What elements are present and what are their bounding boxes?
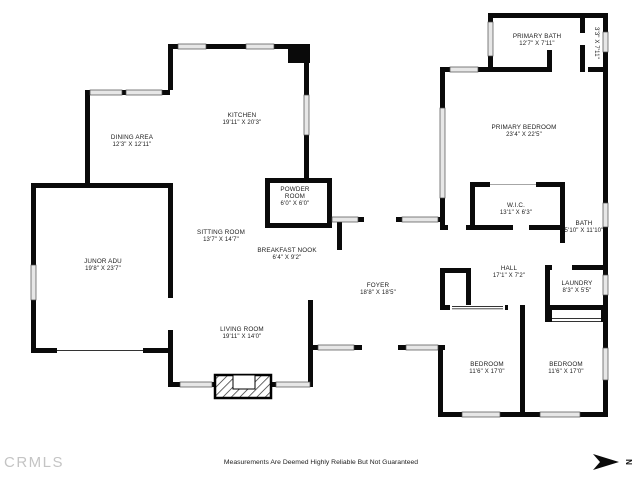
room-dims-bedroom-right: 11'6" X 17'0" (548, 369, 583, 375)
window (462, 412, 500, 417)
floor-plan-page: DINING AREA 12'3" X 12'11" KITCHEN 19'11… (0, 0, 640, 480)
room-dims-small-closet: 3'3" X 7'11" (593, 27, 599, 59)
room-dims-sitting: 13'7" X 14'7" (203, 237, 239, 243)
wall-segment (443, 268, 471, 273)
room-label-bedroom-right: BEDROOM (549, 361, 583, 368)
window (180, 382, 212, 387)
wall-segment (168, 49, 173, 90)
window (318, 345, 354, 350)
room-label-primary-bath: PRIMARY BATH (513, 33, 562, 40)
wall-segment (470, 187, 475, 230)
room-label-hall: HALL (501, 265, 518, 272)
door-opening (513, 225, 529, 230)
floor-plan-svg: DINING AREA 12'3" X 12'11" KITCHEN 19'11… (0, 0, 640, 480)
wall-segment (308, 300, 313, 387)
wall-segment (580, 18, 585, 33)
window (603, 32, 608, 52)
wall-segment (588, 67, 608, 72)
north-arrow-icon: N (593, 454, 633, 470)
door-opening (448, 225, 466, 230)
room-label-sitting: SITTING ROOM (197, 229, 245, 236)
closet-door-opening (450, 305, 505, 310)
room-label-wic: W.I.C. (507, 202, 525, 209)
wall-segment (466, 273, 471, 305)
wall-segment (440, 268, 445, 310)
room-label-dining: DINING AREA (111, 134, 154, 141)
wall-segment (520, 305, 525, 417)
room-dims-wic: 13'1" X 6'3" (500, 210, 532, 216)
window (450, 67, 478, 72)
room-label-powder-2: ROOM (285, 193, 305, 200)
north-label: N (624, 459, 633, 465)
room-label-foyer: FOYER (367, 282, 390, 289)
wall-segment (488, 67, 552, 72)
fireplace (215, 375, 271, 398)
room-dims-bedroom-left: 11'6" X 17'0" (469, 369, 504, 375)
window (603, 275, 608, 295)
wall-segment (545, 305, 608, 310)
room-dims-primary-bedroom: 23'4" X 22'5" (506, 132, 542, 138)
wall-segment (337, 222, 342, 250)
window (332, 217, 358, 222)
room-dims-living: 19'11" X 14'0" (223, 334, 262, 340)
door-opening (508, 305, 520, 310)
wall-segment (85, 95, 90, 183)
window (126, 90, 162, 95)
window (90, 90, 122, 95)
window (440, 108, 445, 198)
patio-door-opening (364, 217, 396, 222)
window (603, 203, 608, 227)
window (276, 382, 310, 387)
wall-segment (545, 270, 550, 310)
door-opening (552, 265, 572, 270)
crmls-logo: CRMLS (4, 454, 64, 471)
window (31, 265, 36, 300)
room-dims-powder: 6'0" X 6'0" (281, 201, 310, 207)
room-dims-dining: 12'3" X 12'11" (113, 142, 152, 148)
wall-segment (488, 13, 608, 18)
room-dims-adu: 19'8" X 23'7" (85, 266, 121, 272)
room-label-nook: BREAKFAST NOOK (257, 247, 317, 254)
room-dims-nook: 6'4" X 9'2" (273, 255, 302, 261)
window (304, 95, 309, 135)
window (603, 348, 608, 380)
room-labels: DINING AREA 12'3" X 12'11" KITCHEN 19'11… (84, 27, 603, 375)
front-door-opening (362, 345, 398, 350)
closet-post (545, 310, 552, 322)
wall-segment (580, 45, 585, 72)
door-openings (57, 182, 572, 353)
window (178, 44, 206, 49)
wall-segment (265, 223, 332, 228)
firebox (233, 375, 255, 389)
disclaimer-text: Measurements Are Deemed Highly Reliable … (224, 459, 418, 466)
north-arrow-shape (593, 454, 619, 470)
wall-segment (168, 188, 173, 387)
wall-segment (438, 345, 443, 417)
room-dims-foyer: 18'8" X 18'5" (360, 290, 396, 296)
window (246, 44, 274, 49)
wall-segment (31, 183, 173, 188)
room-dims-hall: 17'1" X 7'2" (493, 273, 525, 279)
door-opening (168, 298, 173, 330)
wall-segment (265, 183, 270, 228)
wall-segment (265, 178, 332, 183)
room-label-laundry: LAUNDRY (561, 280, 593, 287)
room-label-kitchen: KITCHEN (228, 112, 257, 119)
wall-segment (547, 50, 552, 70)
room-label-bath: BATH (576, 220, 593, 227)
window (488, 22, 493, 56)
room-dims-primary-bath: 12'7" X 7'11" (519, 41, 554, 47)
window (406, 345, 438, 350)
window (540, 412, 580, 417)
closet-post (601, 310, 608, 322)
wall-segment (327, 183, 332, 223)
window (402, 217, 438, 222)
room-label-adu: JUNOR ADU (84, 258, 122, 265)
room-dims-bath: 5'10" X 11'10" (565, 228, 604, 234)
room-label-powder-1: POWDER (280, 186, 310, 193)
room-label-living: LIVING ROOM (220, 326, 264, 333)
room-label-bedroom-left: BEDROOM (470, 361, 504, 368)
footer: CRMLS Measurements Are Deemed Highly Rel… (4, 454, 633, 471)
room-dims-kitchen: 19'11" X 20'3" (223, 120, 262, 126)
room-label-primary-bedroom: PRIMARY BEDROOM (492, 124, 557, 131)
room-dims-laundry: 8'3" X 5'5" (563, 288, 592, 294)
